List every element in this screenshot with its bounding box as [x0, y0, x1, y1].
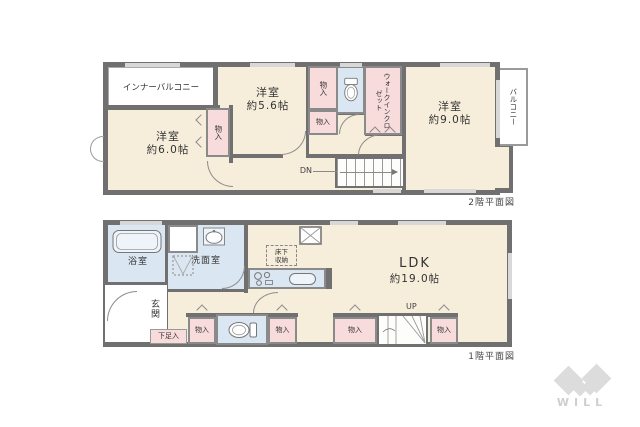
balcony: バルコニー [500, 68, 528, 146]
toilet-icon [342, 77, 360, 103]
wall-segment [103, 105, 220, 110]
stairs-2f-arrow-head [392, 169, 398, 175]
closet-1f-1: 物入 [188, 317, 216, 344]
hatch-box-icon [299, 226, 322, 245]
bathroom: 浴室 [108, 225, 167, 286]
closet-1f-4-label: 物入 [437, 326, 451, 335]
washer-pan [168, 225, 198, 253]
stairs-2f-leader [313, 171, 337, 172]
closet-1f-1-label: 物入 [195, 326, 209, 335]
window [340, 63, 362, 67]
entrance-label: 玄関 [146, 293, 159, 325]
walk-in-closet-label: ウォークインクロゼット [375, 70, 391, 131]
window [508, 253, 512, 299]
room-label-bedroom-9-0: 洋室 約9.0帖 [405, 100, 495, 128]
balcony-label: バルコニー [508, 88, 518, 126]
sink-icon [203, 227, 225, 246]
inner-balcony-label: インナーバルコニー [123, 81, 199, 93]
wall-segment [165, 289, 248, 292]
window [424, 189, 476, 193]
stairs-2f-label: DN [288, 166, 312, 175]
closet-1f-3: 物入 [333, 317, 377, 344]
room-label-bedroom-5-6: 洋室 約5.6帖 [228, 86, 308, 114]
closet-2f-b-label: 物入 [318, 81, 328, 96]
wall-segment [213, 62, 218, 110]
window [373, 189, 401, 193]
closet-1f-2: 物入 [268, 317, 297, 344]
floor-plan-page: バルコニー インナーバルコニー 物入 物入 物入 ウォークインクロゼット DN … [0, 0, 640, 427]
bedroom-9-0-size: 約9.0帖 [405, 114, 495, 128]
window [330, 221, 358, 225]
logo-wordmark: WILL [554, 396, 610, 409]
window [496, 80, 500, 138]
ldk-name: LDK [385, 256, 445, 273]
wall-segment [326, 268, 332, 289]
closet-1f-4: 物入 [430, 317, 458, 344]
window-arc [90, 136, 104, 162]
ldk-size: 約19.0帖 [385, 273, 445, 287]
bedroom-5-6-name: 洋室 [228, 86, 308, 100]
stove-icon [252, 270, 274, 287]
underfloor-storage-label-1: 床下 [267, 248, 296, 256]
washer-icon [172, 255, 194, 276]
floor2-caption: 2階平面図 [430, 195, 515, 208]
shoe-box-label: 下足入 [158, 332, 179, 341]
bedroom-5-6-size: 約5.6帖 [228, 100, 308, 114]
wall-segment [229, 154, 283, 158]
stairs-1f [377, 314, 428, 346]
kitchen-sink-icon [289, 273, 316, 285]
floor2-bay-extension [495, 143, 513, 193]
toilet-room-2f [336, 66, 365, 114]
stairs-1f-treads [379, 316, 426, 344]
window [120, 221, 162, 225]
bathtub-icon [112, 229, 162, 254]
walk-in-closet: ウォークインクロゼット [364, 66, 402, 135]
kitchen-counter [248, 268, 326, 289]
window [398, 221, 446, 225]
inner-balcony: インナーバルコニー [108, 67, 214, 107]
toilet-room-1f [216, 314, 268, 345]
bedroom-9-0-name: 洋室 [405, 100, 495, 114]
closet-2f-a-label: 物入 [213, 125, 223, 140]
toilet-icon [226, 320, 258, 340]
window [440, 63, 490, 67]
bathroom-label: 浴室 [117, 257, 159, 269]
closet-2f-c: 物入 [308, 110, 338, 135]
floor1-caption: 1階平面図 [430, 349, 515, 362]
underfloor-storage-label-2: 収納 [267, 256, 296, 264]
closet-1f-3-label: 物入 [348, 326, 362, 335]
closet-2f-b: 物入 [308, 66, 338, 110]
stairs-1f-label: UP [406, 302, 430, 311]
stairs-2f-arrow-line [340, 172, 394, 173]
underfloor-storage: 床下 収納 [266, 245, 297, 266]
closet-2f-c-label: 物入 [316, 118, 330, 127]
window [125, 63, 180, 67]
window [250, 63, 295, 67]
room-label-ldk: LDK 約19.0帖 [385, 256, 445, 287]
closet-1f-2-label: 物入 [276, 326, 290, 335]
shoe-box: 下足入 [150, 329, 187, 344]
